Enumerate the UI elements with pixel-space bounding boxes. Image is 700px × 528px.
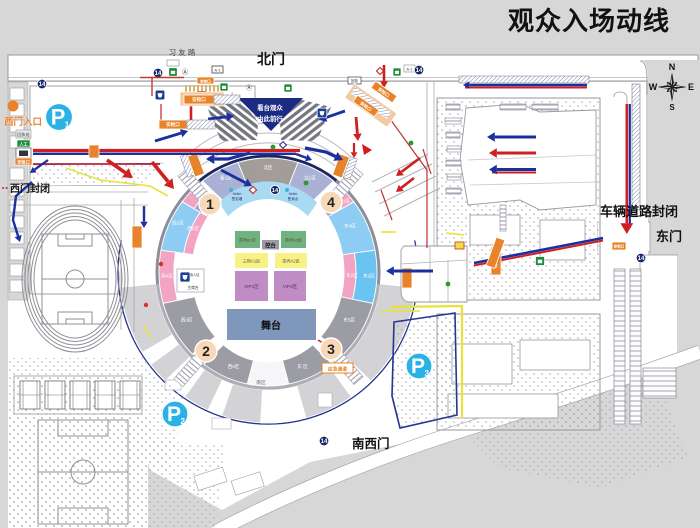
svg-text:9x3m: 9x3m — [233, 192, 242, 196]
svg-text:3: 3 — [327, 341, 335, 357]
svg-text:主席台: 主席台 — [187, 285, 199, 290]
svg-text:1: 1 — [206, 196, 214, 212]
svg-text:安检口: 安检口 — [166, 121, 180, 128]
svg-text:S: S — [669, 103, 675, 112]
svg-text:南西门: 南西门 — [352, 436, 390, 451]
svg-text:VIP1区: VIP1区 — [244, 284, 259, 289]
svg-text:看台观众: 看台观众 — [257, 103, 283, 112]
svg-text:安检口: 安检口 — [192, 96, 206, 103]
svg-text:Ⓐ: Ⓐ — [246, 84, 252, 92]
svg-text:2: 2 — [180, 417, 185, 426]
svg-text:东门: 东门 — [656, 229, 682, 244]
svg-text:控台: 控台 — [265, 242, 276, 250]
svg-text:回执处: 回执处 — [17, 131, 30, 138]
svg-text:P: P — [167, 403, 181, 426]
svg-text:售卖点: 售卖点 — [288, 196, 299, 201]
svg-text:车辆道路封闭: 车辆道路封闭 — [600, 204, 678, 219]
svg-text:P: P — [411, 355, 425, 378]
svg-text:14: 14 — [155, 71, 162, 77]
svg-text:东2区: 东2区 — [346, 272, 358, 278]
svg-text:北1区: 北1区 — [304, 175, 316, 182]
svg-text:南区: 南区 — [256, 379, 266, 386]
svg-text:安检口: 安检口 — [17, 159, 30, 166]
svg-text:东5区: 东5区 — [343, 316, 355, 322]
svg-text:3: 3 — [424, 369, 429, 378]
svg-text:东3区: 东3区 — [363, 272, 375, 278]
svg-text:1: 1 — [65, 120, 70, 130]
svg-text:东 区: 东 区 — [297, 363, 308, 369]
svg-text:Ⓐ: Ⓐ — [182, 68, 189, 76]
svg-text:A-1: A-1 — [407, 68, 413, 72]
svg-text:贵宾B1区: 贵宾B1区 — [239, 237, 256, 243]
svg-text:由此前行: 由此前行 — [257, 114, 283, 123]
svg-text:北门: 北门 — [257, 51, 285, 67]
svg-text:9x3m: 9x3m — [289, 192, 298, 196]
svg-text:2: 2 — [202, 343, 210, 359]
svg-text:签名墙: 签名墙 — [232, 196, 243, 201]
svg-text:东4区: 东4区 — [344, 222, 356, 228]
svg-text:14: 14 — [272, 188, 279, 194]
svg-text:14: 14 — [321, 439, 328, 445]
svg-text:N: N — [669, 62, 676, 72]
svg-text:西门入口: 西门入口 — [4, 116, 42, 128]
svg-text:北区: 北区 — [263, 164, 273, 171]
svg-text:应急通道: 应急通道 — [328, 366, 347, 373]
svg-text:舞台: 舞台 — [261, 319, 281, 332]
svg-text:P: P — [51, 104, 66, 129]
svg-text:贵宾B2区: 贵宾B2区 — [285, 237, 302, 243]
svg-text:14: 14 — [39, 82, 46, 88]
svg-text:回执: 回执 — [351, 78, 359, 83]
svg-text:14: 14 — [638, 256, 645, 262]
svg-text:贵宾A2区: 贵宾A2区 — [282, 258, 300, 265]
svg-text:安检口: 安检口 — [200, 79, 211, 84]
svg-text:西门封闭: 西门封闭 — [10, 182, 50, 195]
svg-text:W: W — [649, 82, 658, 92]
svg-text:E: E — [688, 82, 694, 92]
svg-text:14: 14 — [416, 68, 423, 74]
svg-text:4: 4 — [327, 194, 335, 210]
svg-text:安检口: 安检口 — [614, 243, 625, 248]
svg-text:A-1: A-1 — [215, 69, 221, 73]
svg-text:观众入场动线: 观众入场动线 — [508, 6, 670, 36]
svg-text:习 友 路: 习 友 路 — [169, 47, 196, 57]
svg-text:三购A1区: 三购A1区 — [243, 258, 261, 265]
svg-text:VIP2区: VIP2区 — [283, 284, 298, 289]
